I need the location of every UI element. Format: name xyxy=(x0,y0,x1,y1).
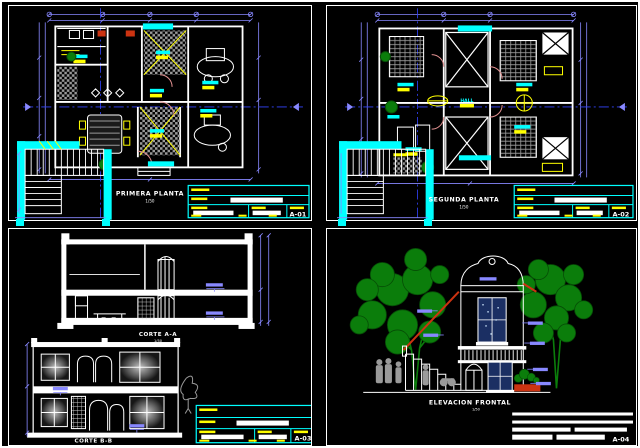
sheet-title: PRIMERA PLANTA xyxy=(116,191,184,198)
exterior-stair xyxy=(337,141,434,220)
lower-window xyxy=(486,362,514,393)
hall-area-bar xyxy=(460,104,474,108)
title-block: A-03 xyxy=(196,405,311,442)
sheet-number: A-02 xyxy=(612,211,629,219)
title-block: A-02 xyxy=(514,185,633,218)
sheet-title: SEGUNDA PLANTA xyxy=(429,197,500,204)
kitchen-furniture xyxy=(57,28,135,54)
sheet-a01-primera-planta: PRIMERA PLANTA 1/50 A-01 xyxy=(8,5,312,221)
entrance-porch xyxy=(138,167,170,175)
door-swings xyxy=(432,55,502,129)
stair-wall-extension xyxy=(338,219,346,226)
sheet-number: A-03 xyxy=(295,435,311,443)
stair-wall-extension xyxy=(424,219,432,226)
dining-table xyxy=(79,115,129,153)
planter xyxy=(514,369,540,391)
corte-a-dimensions xyxy=(259,233,271,326)
stair-wall-extension xyxy=(16,219,24,226)
closet-x xyxy=(542,32,568,159)
corte-b-sketch-tree xyxy=(181,376,198,413)
upper-window xyxy=(476,298,508,346)
sheet-scale: 1/50 xyxy=(459,205,468,210)
balcony xyxy=(458,346,526,363)
corte-a-label: CORTE A-A xyxy=(139,332,177,338)
window-sills xyxy=(458,25,492,160)
sheet-a04-elevacion-frontal: ELEVACION FRONTAL 1/50 A-04 xyxy=(326,228,637,446)
corte-b-upper-windows xyxy=(41,352,160,382)
cad-drawing-sheet: PRIMERA PLANTA 1/50 A-01 xyxy=(0,0,640,448)
corte-b-dimensions xyxy=(25,342,29,437)
corte-b-label: CORTE B-B xyxy=(75,439,113,445)
hall-label: HALL xyxy=(460,98,473,104)
sheet-title: ELEVACION FRONTAL xyxy=(429,399,511,406)
sheet-scale: 1/50 xyxy=(472,407,480,411)
sheet-scale: 1/50 xyxy=(145,199,154,204)
title-block: A-04 xyxy=(512,412,633,443)
entry-door xyxy=(466,364,482,390)
sheet-a02-segunda-planta: HALL xyxy=(326,5,637,221)
corte-a-structure xyxy=(57,233,254,329)
sheet-number: A-04 xyxy=(612,436,629,444)
title-block: A-01 xyxy=(188,185,309,218)
study-desks xyxy=(194,49,233,152)
stair-wall-extension xyxy=(102,219,110,226)
level-markers xyxy=(206,284,224,320)
sheet-number: A-01 xyxy=(289,211,306,219)
corte-b-lower-openings xyxy=(41,396,164,430)
sheet-a03-cortes: CORTE A-A 1/50 xyxy=(8,228,312,446)
exterior-stair xyxy=(15,141,112,220)
